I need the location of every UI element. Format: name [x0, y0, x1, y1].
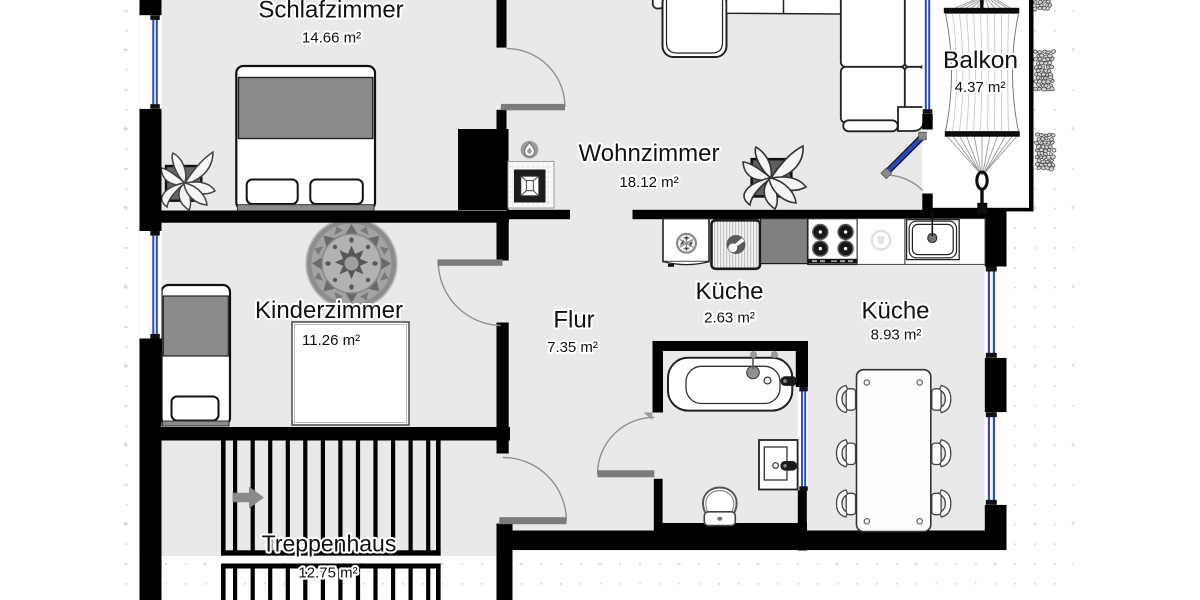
svg-text:4.37 m²: 4.37 m²: [955, 79, 1006, 96]
svg-text:Küche: Küche: [695, 278, 763, 305]
svg-text:7.35 m²: 7.35 m²: [547, 339, 598, 356]
svg-text:Balkon: Balkon: [943, 47, 1018, 74]
svg-text:Wohnzimmer: Wohnzimmer: [579, 140, 720, 167]
svg-text:14.66 m²: 14.66 m²: [302, 30, 361, 47]
svg-text:11.26 m²: 11.26 m²: [302, 332, 360, 349]
svg-text:Treppenhaus: Treppenhaus: [262, 531, 397, 557]
svg-text:18.12 m²: 18.12 m²: [619, 174, 678, 191]
svg-text:Kinderzimmer: Kinderzimmer: [255, 297, 403, 324]
svg-text:Küche: Küche: [861, 298, 929, 325]
svg-text:12.75 m²: 12.75 m²: [298, 565, 357, 582]
svg-text:Flur: Flur: [553, 307, 594, 334]
svg-text:8.93 m²: 8.93 m²: [871, 327, 922, 344]
svg-text:2.63 m²: 2.63 m²: [704, 310, 755, 327]
svg-text:Schlafzimmer: Schlafzimmer: [258, 0, 403, 24]
